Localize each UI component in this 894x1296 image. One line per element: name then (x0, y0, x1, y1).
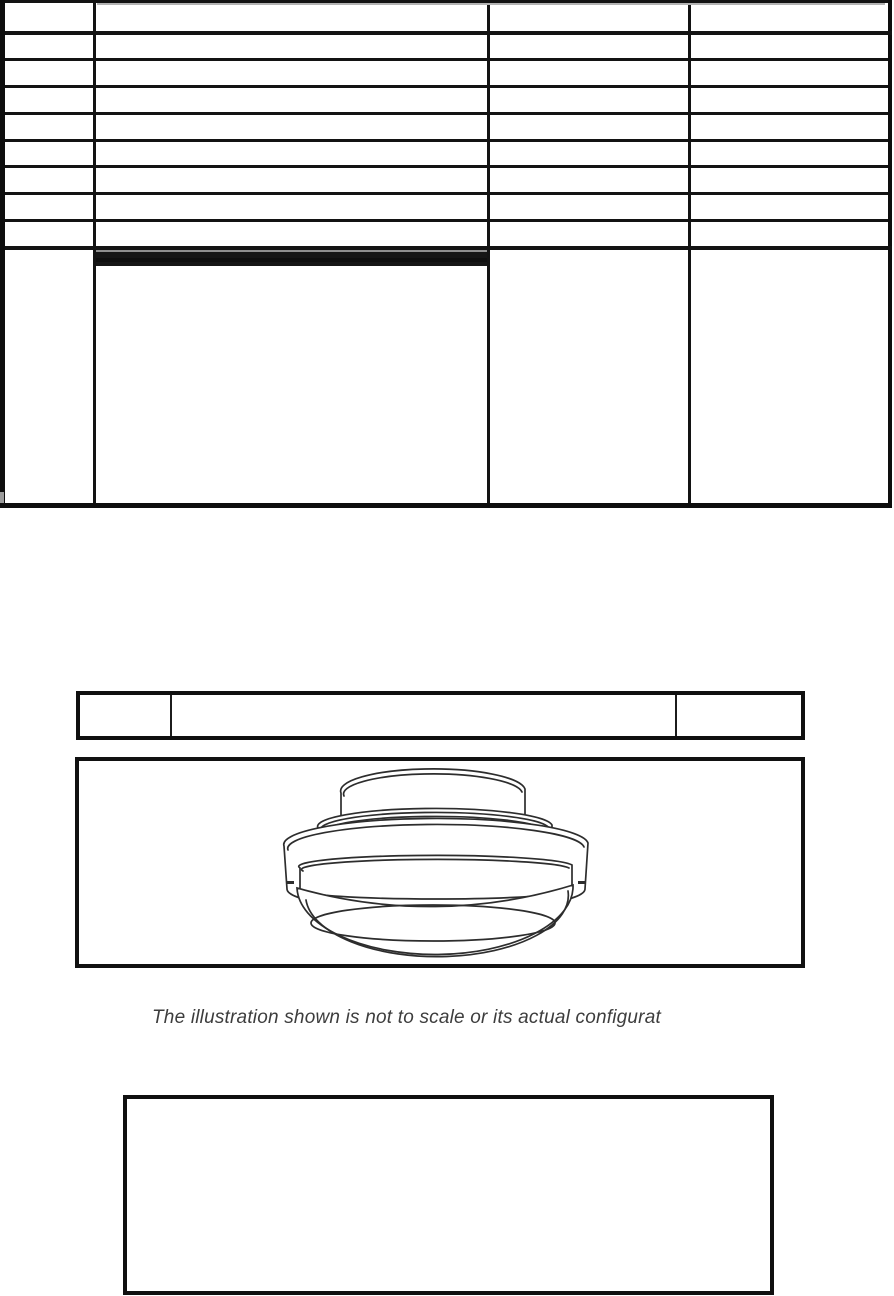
title-block-row (78, 693, 803, 738)
spec-row (3, 86, 891, 113)
spec-table (0, 0, 892, 508)
spec-cell (489, 194, 690, 221)
spec-cell (3, 33, 95, 60)
spec-row (3, 221, 891, 248)
spec-header-cell (489, 2, 690, 33)
spec-row (3, 167, 891, 194)
detail-subrow (96, 264, 487, 266)
spec-cell (3, 60, 95, 87)
spec-header-row (3, 2, 891, 33)
spec-cell (3, 194, 95, 221)
spec-row (3, 33, 891, 60)
spec-cell (489, 86, 690, 113)
spec-cell (489, 221, 690, 248)
screw-slot-left-icon (286, 881, 294, 884)
document-page: { "caption": { "text": "The illustration… (0, 0, 894, 1296)
spec-cell (690, 86, 890, 113)
spec-cell (95, 86, 489, 113)
spec-cell (690, 167, 890, 194)
spec-cell (3, 167, 95, 194)
spec-cell (95, 33, 489, 60)
figure-caption: The illustration shown is not to scale o… (152, 1004, 712, 1032)
scan-artifact-gray-line (97, 3, 885, 5)
title-block-cell (78, 693, 171, 738)
spec-row (3, 60, 891, 87)
spec-header-cell (690, 2, 890, 33)
spec-cell (690, 33, 890, 60)
spec-row (3, 113, 891, 140)
spec-cell (95, 60, 489, 87)
spec-cell (95, 221, 489, 248)
notes-box (123, 1095, 774, 1295)
spec-row (3, 140, 891, 167)
spec-cell (3, 113, 95, 140)
spec-header-cell (3, 2, 95, 33)
spec-cell (95, 113, 489, 140)
spec-cell (690, 140, 890, 167)
spec-detail-cell (690, 248, 890, 506)
title-block-cell (171, 693, 677, 738)
spec-cell (95, 194, 489, 221)
title-block-cell (676, 693, 803, 738)
spec-cell (95, 140, 489, 167)
spec-header-cell (95, 2, 489, 33)
device-illustration (75, 757, 805, 968)
spec-detail-cell (3, 248, 95, 506)
spec-row (3, 194, 891, 221)
spec-detail-cell (489, 248, 690, 506)
detail-subgrid (96, 250, 487, 503)
spec-cell (690, 113, 890, 140)
spec-cell (690, 194, 890, 221)
spec-cell (3, 140, 95, 167)
spec-cell (3, 221, 95, 248)
title-block-table (76, 691, 805, 740)
spec-cell (489, 140, 690, 167)
spec-cell (690, 60, 890, 87)
spec-cell (489, 113, 690, 140)
spec-cell (489, 60, 690, 87)
screw-slot-right-icon (578, 881, 586, 884)
spec-cell (690, 221, 890, 248)
spec-cell (489, 167, 690, 194)
scan-artifact-corner (0, 492, 4, 503)
spec-detail-subdivided-cell (95, 248, 489, 506)
spec-cell (489, 33, 690, 60)
spec-cell (3, 86, 95, 113)
spec-cell (95, 167, 489, 194)
spec-detail-row (3, 248, 891, 506)
